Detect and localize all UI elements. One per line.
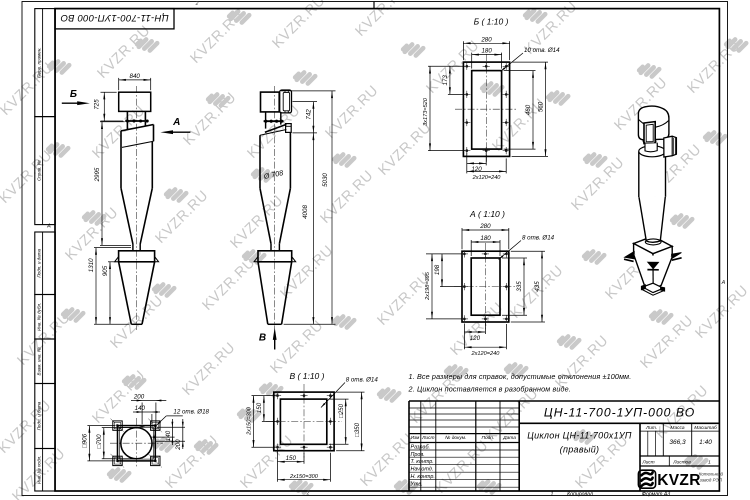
svg-text:Лит.: Лит. [645,425,657,431]
svg-text:ЦН-11-700-1УП-000 ВО: ЦН-11-700-1УП-000 ВО [60,12,169,23]
svg-text:2: 2 [306,491,310,497]
svg-text:А ( 1:10 ): А ( 1:10 ) [469,209,505,219]
svg-text:Н. контр.: Н. контр. [411,474,435,480]
svg-text:4008: 4008 [302,205,309,219]
svg-text:200: 200 [175,439,182,451]
svg-text:Б: Б [70,89,77,100]
svg-text:1. Все размеры для справок, до: 1. Все размеры для справок, допустимые о… [409,372,632,381]
svg-text:12 отв. Ø18: 12 отв. Ø18 [173,409,209,416]
svg-text:KVZR.RU: KVZR.RU [424,38,483,97]
svg-text:140: 140 [165,430,172,441]
svg-text:завод РЭП: завод РЭП [699,478,723,483]
svg-text:Разраб.: Разраб. [411,444,431,450]
svg-text:2. Циклон поставляется в разоб: 2. Циклон поставляется в разобранном вид… [408,384,571,393]
svg-text:120: 120 [470,335,481,342]
svg-text:KVZR.RU: KVZR.RU [268,318,327,377]
svg-text:2х120=240: 2х120=240 [472,175,502,181]
svg-text:2995: 2995 [94,167,101,182]
svg-text:150: 150 [286,455,297,462]
svg-text:280: 280 [479,223,491,230]
svg-text:KVZR.RU: KVZR.RU [376,120,435,179]
svg-text:Инв. № подл.: Инв. № подл. [36,455,41,484]
svg-text:335: 335 [516,281,523,292]
svg-text:180: 180 [480,235,491,242]
svg-text:KVZR.RU: KVZR.RU [693,283,750,342]
svg-text:Подп. и дата: Подп. и дата [36,248,41,277]
svg-text:□906: □906 [82,433,89,448]
svg-text:150: 150 [256,402,263,413]
svg-text:1: 1 [708,460,711,466]
svg-text:10 отв. Ø14: 10 отв. Ø14 [524,47,560,54]
svg-text:KVZR: KVZR [657,472,700,489]
svg-text:366,3: 366,3 [669,439,686,446]
svg-text:Дата: Дата [502,435,516,441]
svg-text:2: 2 [195,1,199,7]
svg-text:KVZR.RU: KVZR.RU [323,83,382,142]
svg-text:140: 140 [135,405,146,412]
svg-text:8 отв. Ø14: 8 отв. Ø14 [522,235,555,242]
svg-text:280: 280 [480,36,492,43]
svg-text:Листов: Листов [672,460,691,466]
svg-text:1:40: 1:40 [699,439,712,446]
svg-text:Подп. и дата: Подп. и дата [36,401,41,430]
svg-text:5030: 5030 [322,173,329,187]
svg-text:8 отв. Ø14: 8 отв. Ø14 [346,377,379,384]
svg-text:Котельный: Котельный [699,471,724,477]
svg-text:Лист: Лист [641,460,654,466]
svg-text:В: В [259,333,266,344]
svg-text:173: 173 [442,75,449,86]
svg-text:Лист: Лист [421,435,434,441]
svg-text:Масса: Масса [670,425,685,431]
svg-text:1310: 1310 [88,258,95,272]
svg-text:Подп.: Подп. [482,435,495,441]
svg-text:Пров.: Пров. [411,452,425,458]
svg-text:(правый): (правый) [560,445,600,455]
svg-text:KVZR.RU: KVZR.RU [0,148,56,207]
svg-text:Инв. № дубл.: Инв. № дубл. [36,303,41,331]
svg-text:2х198=395: 2х198=395 [425,271,431,301]
svg-text:Масштаб: Масштаб [694,425,717,431]
svg-text:Нач.отд.: Нач.отд. [411,467,434,473]
svg-text:KVZR.RU: KVZR.RU [180,340,239,399]
svg-text:Циклон ЦН-11-700х1УП: Циклон ЦН-11-700х1УП [527,431,632,441]
svg-text:KVZR.RU: KVZR.RU [448,300,507,359]
svg-text:ЦН-11-700-1УП-000 ВО: ЦН-11-700-1УП-000 ВО [544,406,695,420]
svg-text:460: 460 [525,104,532,115]
svg-text:2х150=300: 2х150=300 [247,406,253,436]
svg-text:KVZR.RU: KVZR.RU [200,255,259,314]
svg-text:435: 435 [534,281,541,292]
svg-text:2х120=240: 2х120=240 [470,351,500,357]
svg-text:905: 905 [102,265,109,276]
svg-text:Изм: Изм [410,435,420,441]
svg-text:□350: □350 [354,422,361,437]
svg-text:□250: □250 [338,403,345,418]
svg-text:KVZR.RU: KVZR.RU [108,293,167,352]
svg-text:Копировал: Копировал [567,492,593,498]
svg-text:KVZR.RU: KVZR.RU [0,398,55,457]
svg-text:Справ. №: Справ. № [36,160,41,181]
svg-text:742: 742 [306,109,313,120]
svg-text:Утв.: Утв. [410,482,423,488]
svg-text:А: А [721,280,726,286]
svg-text:№ докум.: № докум. [445,435,466,441]
svg-text:KVZR.RU: KVZR.RU [95,23,154,82]
svg-text:1: 1 [551,492,554,498]
svg-text:KVZR.RU: KVZR.RU [358,431,417,490]
svg-text:KVZR.RU: KVZR.RU [353,0,412,40]
svg-text:Т. контр.: Т. контр. [411,459,434,465]
svg-text:Перв. примен.: Перв. примен. [36,47,41,78]
svg-text:840: 840 [130,73,141,80]
svg-text:Б ( 1:10 ): Б ( 1:10 ) [474,17,509,27]
svg-text:Формат А3: Формат А3 [642,492,670,498]
svg-text:В ( 1:10 ): В ( 1:10 ) [290,371,325,381]
svg-text:2х150=300: 2х150=300 [289,474,319,480]
svg-text:180: 180 [481,48,492,55]
svg-text:Ø 708: Ø 708 [262,168,284,181]
svg-text:198: 198 [434,264,441,275]
svg-text:725: 725 [94,99,101,110]
svg-text:200: 200 [133,393,145,400]
svg-text:KVZR.RU: KVZR.RU [228,193,287,252]
svg-text:Взам. инв. №: Взам. инв. № [36,347,41,375]
svg-text:560: 560 [538,101,545,112]
svg-text:□700: □700 [96,434,103,449]
svg-text:А: А [172,117,180,128]
svg-text:KVZR.RU: KVZR.RU [238,433,297,492]
svg-text:3х173=520: 3х173=520 [423,97,429,126]
